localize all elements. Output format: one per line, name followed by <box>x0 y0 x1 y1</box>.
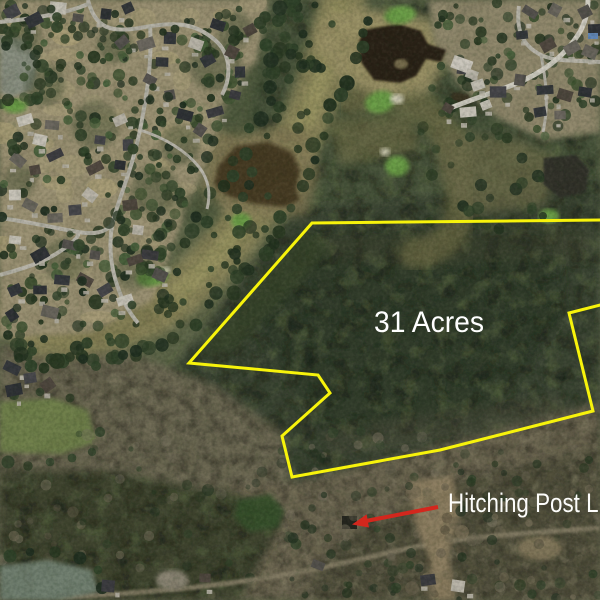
svg-text:31 Acres: 31 Acres <box>374 306 484 339</box>
svg-text:Hitching Post Ln: Hitching Post Ln <box>448 488 600 518</box>
